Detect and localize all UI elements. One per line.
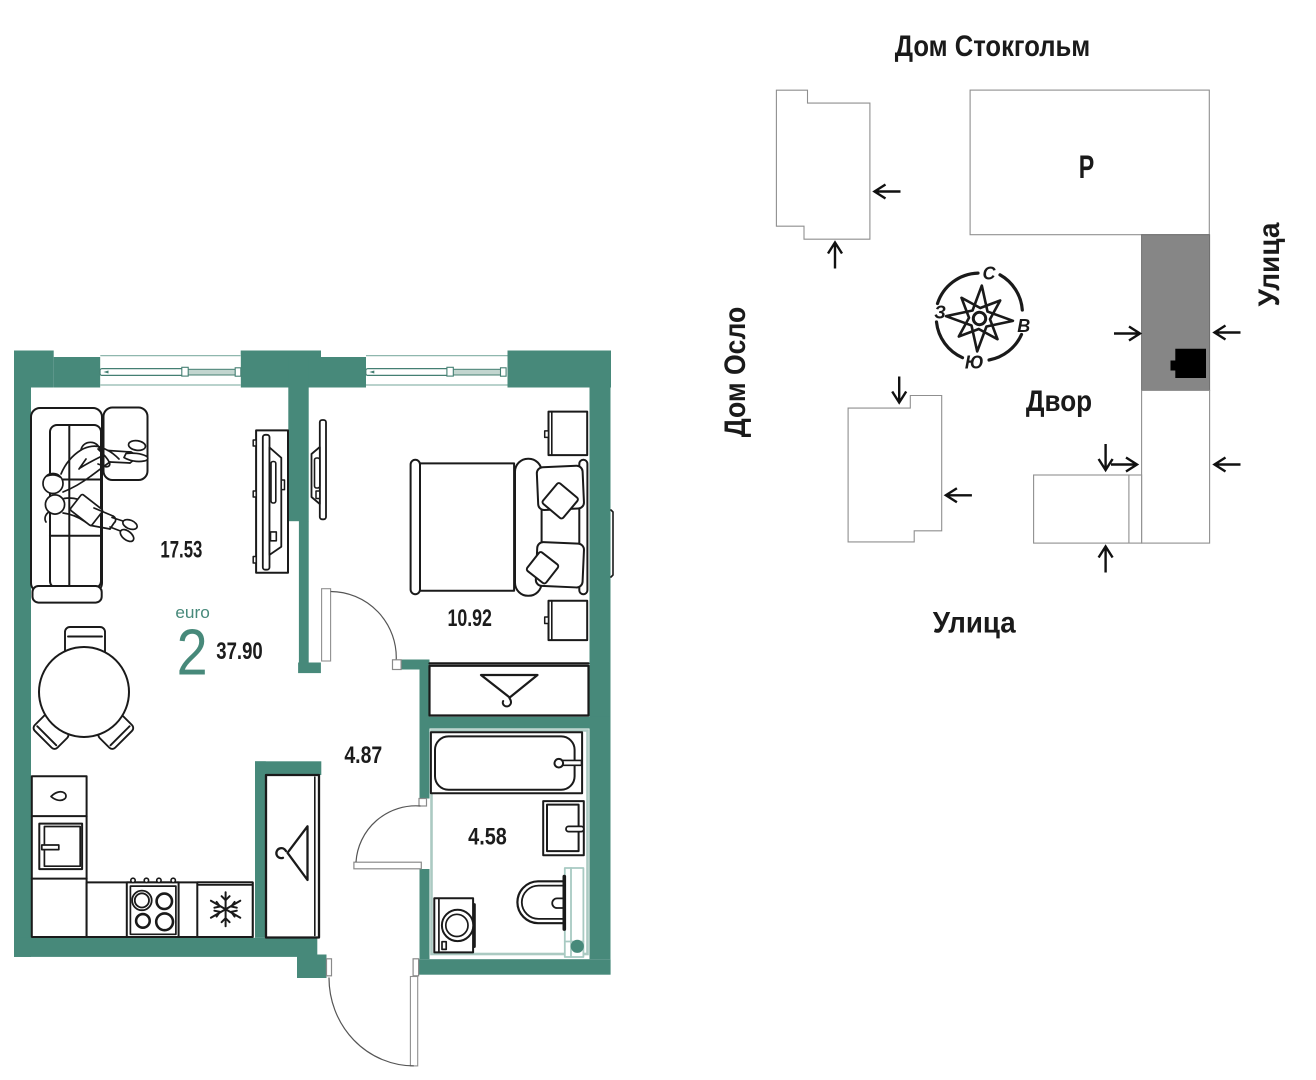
svg-text:10.92: 10.92 [447, 605, 492, 632]
svg-text:Дом Осло: Дом Осло [719, 307, 752, 438]
svg-text:Дом Стокгольм: Дом Стокгольм [895, 30, 1091, 63]
svg-text:Р: Р [1079, 149, 1095, 185]
svg-text:37.90: 37.90 [216, 638, 262, 665]
svg-text:4.58: 4.58 [468, 824, 507, 851]
svg-text:4.87: 4.87 [344, 742, 382, 769]
svg-text:З: З [934, 302, 946, 322]
svg-text:В: В [1017, 316, 1030, 336]
svg-text:Улица: Улица [1253, 222, 1286, 307]
svg-text:Улица: Улица [933, 607, 1017, 640]
svg-text:2: 2 [177, 616, 208, 689]
svg-text:Двор: Двор [1026, 385, 1092, 418]
svg-text:С: С [983, 264, 997, 284]
svg-text:Ю: Ю [965, 352, 984, 372]
svg-text:17.53: 17.53 [160, 537, 202, 564]
